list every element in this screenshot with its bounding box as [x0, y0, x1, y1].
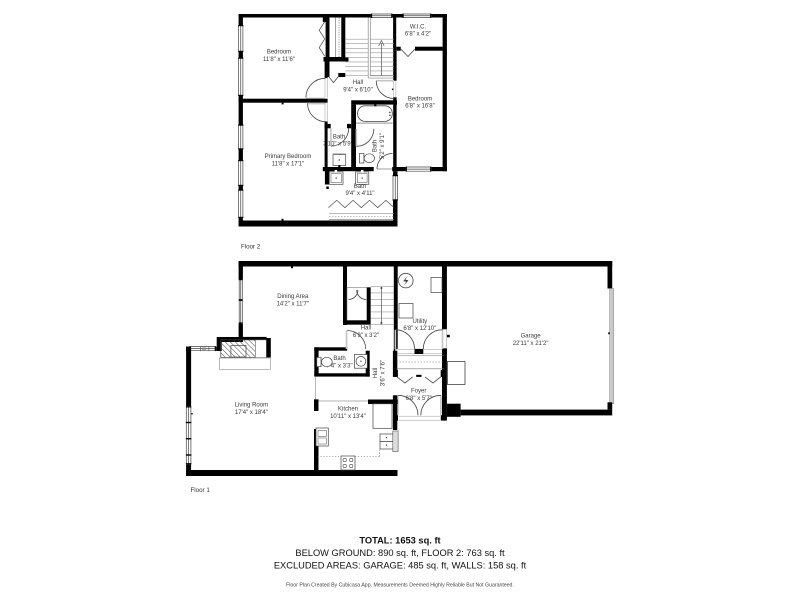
- svg-text:Bath: Bath: [373, 140, 379, 152]
- svg-text:Utility: Utility: [412, 319, 427, 325]
- svg-text:9'4" x 4'11": 9'4" x 4'11": [345, 191, 374, 197]
- svg-text:Primary Bedroom: Primary Bedroom: [265, 154, 312, 160]
- svg-text:3'6" x 7'6": 3'6" x 7'6": [381, 360, 387, 386]
- svg-text:6'8" x 4'2": 6'8" x 4'2": [405, 31, 431, 37]
- svg-text:Hall: Hall: [373, 368, 379, 378]
- svg-text:17'4" x 18'4": 17'4" x 18'4": [235, 410, 268, 416]
- svg-text:11'8" x 17'1": 11'8" x 17'1": [272, 162, 304, 168]
- svg-text:9'4" x 6'10": 9'4" x 6'10": [343, 88, 373, 94]
- svg-text:TOTAL: 1653 sq. ft: TOTAL: 1653 sq. ft: [359, 536, 440, 546]
- svg-text:Hall: Hall: [361, 326, 371, 332]
- svg-text:11'8" x 11'6": 11'8" x 11'6": [263, 57, 295, 63]
- svg-text:Dining Area: Dining Area: [277, 294, 309, 300]
- svg-text:Bedroom: Bedroom: [408, 97, 432, 103]
- svg-text:BELOW GROUND: 890 sq. ft, FLOO: BELOW GROUND: 890 sq. ft, FLOOR 2: 763 s…: [295, 548, 505, 558]
- svg-text:Foyer: Foyer: [411, 389, 426, 395]
- svg-text:22'11" x 21'2": 22'11" x 21'2": [513, 341, 549, 347]
- svg-text:6'8" x 16'8": 6'8" x 16'8": [405, 104, 435, 110]
- svg-text:Floor 2: Floor 2: [241, 244, 261, 251]
- svg-text:Kitchen: Kitchen: [338, 407, 358, 413]
- svg-text:W.I.C.: W.I.C.: [410, 24, 427, 30]
- svg-text:Floor Plan Created By Cubicasa: Floor Plan Created By Cubicasa App. Meas…: [286, 583, 514, 589]
- svg-text:Bath: Bath: [354, 184, 366, 190]
- svg-text:Floor 1: Floor 1: [191, 487, 211, 494]
- svg-text:Hall: Hall: [353, 80, 363, 86]
- svg-text:6'8" x 12'10": 6'8" x 12'10": [403, 326, 436, 332]
- svg-text:EXCLUDED AREAS: GARAGE: 485 sq: EXCLUDED AREAS: GARAGE: 485 sq. ft, WALL…: [274, 561, 527, 571]
- svg-text:6'9" x 3'2": 6'9" x 3'2": [353, 333, 379, 339]
- svg-text:Bath: Bath: [333, 134, 345, 140]
- svg-text:Bedroom: Bedroom: [267, 50, 291, 56]
- svg-text:Living Room: Living Room: [235, 403, 268, 409]
- svg-text:Garage: Garage: [521, 334, 542, 340]
- svg-text:Bath: Bath: [333, 356, 345, 362]
- svg-text:14'2" x 11'7": 14'2" x 11'7": [277, 302, 309, 308]
- svg-text:10'11" x 13'4": 10'11" x 13'4": [330, 414, 366, 420]
